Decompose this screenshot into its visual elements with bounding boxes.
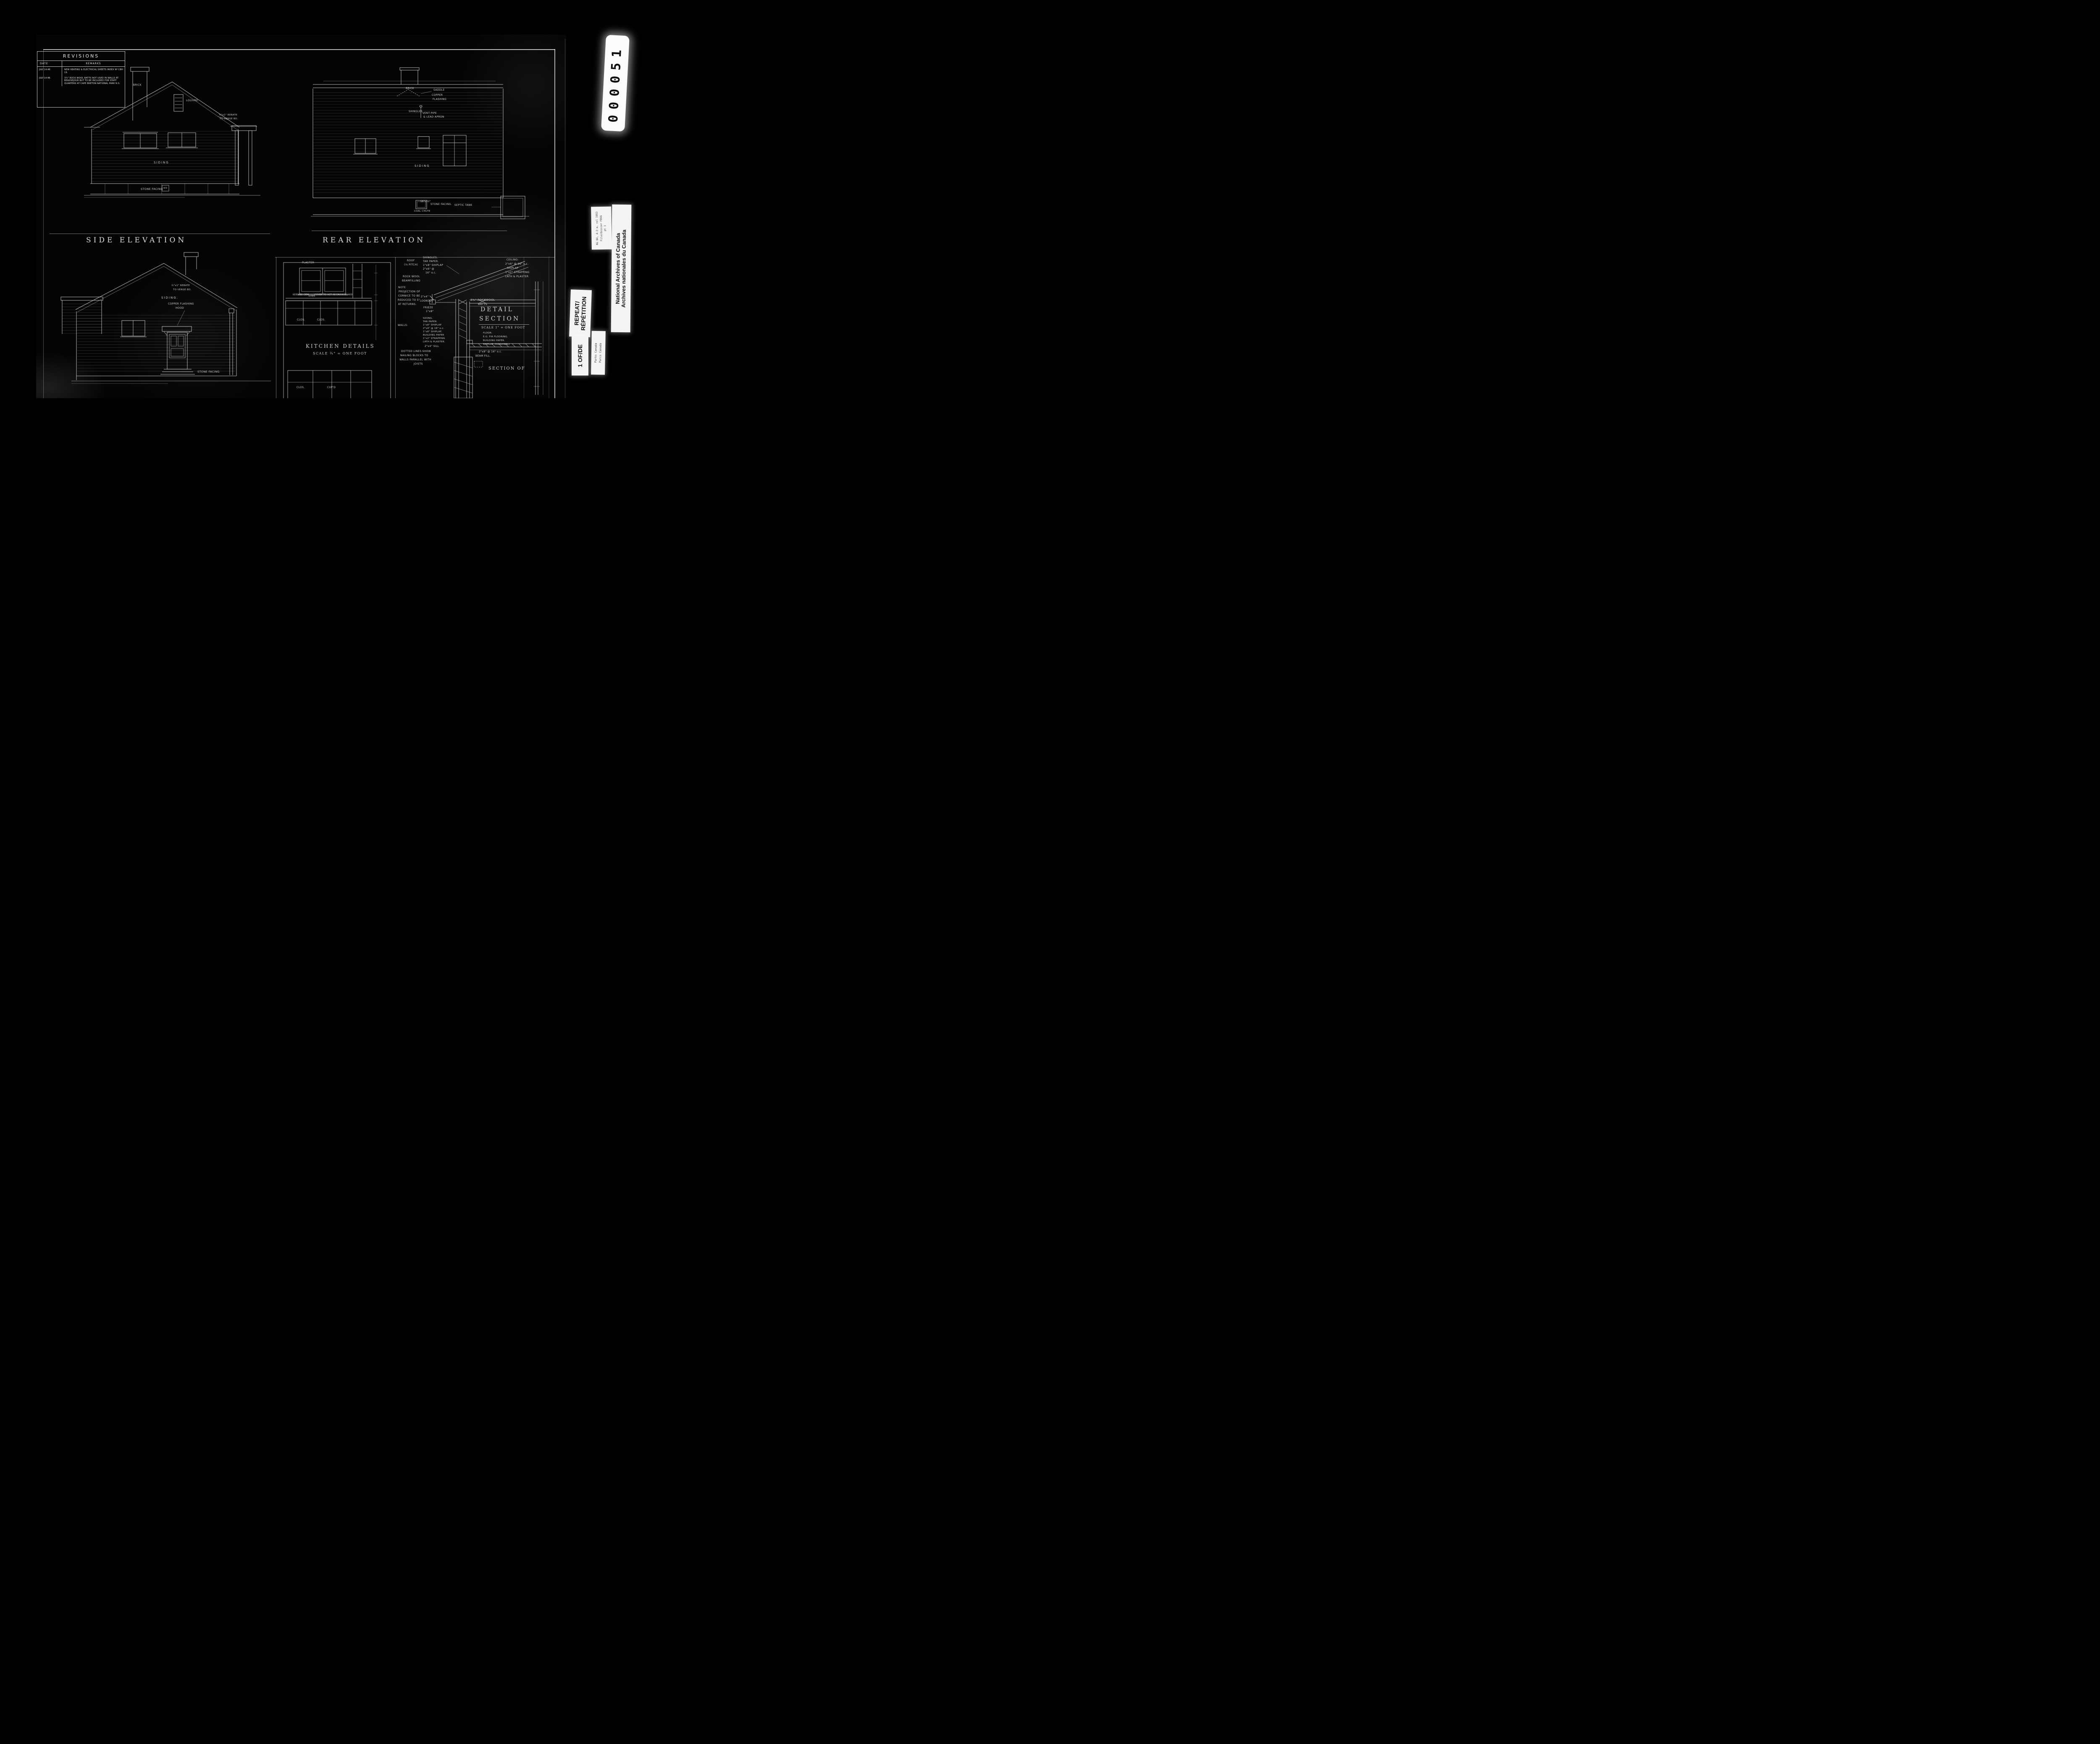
- detail-wall-layers: LATH & PLASTER.: [423, 341, 445, 344]
- repeat-line: RÉPÉTITION: [580, 297, 588, 331]
- side-rebate-label: TO VERGE BD.: [220, 118, 238, 121]
- detail-joists-label: 2"x8" @ 16" o.c.: [479, 351, 502, 353]
- detail-roof-layers: SHINGLES.: [423, 257, 438, 259]
- detail-sill-label: 2"x4" SILL: [425, 345, 439, 348]
- front-copper-hood-label: HOOD: [176, 307, 184, 310]
- kitchen-closet-label: CLOS.: [297, 319, 305, 321]
- front-siding-label: SIDING.: [161, 297, 178, 299]
- frame-number-text: 1 OF/DE: [577, 344, 583, 367]
- side-chimney: [133, 71, 147, 121]
- repeat-label: REPEAT/ RÉPÉTITION: [569, 289, 592, 337]
- parks-canada-line: Parks Canada: [593, 343, 598, 362]
- detail-wall-layers: TAR PAPER.: [423, 321, 437, 323]
- side-porch-column: [249, 131, 252, 185]
- rear-saddle-label: SADDLE: [433, 89, 445, 92]
- side-rebate-label: ½"x1" REBATE: [219, 114, 237, 117]
- rear-saddle: [397, 89, 420, 96]
- detail-walls-label: WALLS:: [398, 324, 408, 327]
- detail-nailing-block: [474, 361, 483, 367]
- kitchen-details-drawing: [273, 256, 399, 398]
- kitchen-keenes-label: KEENES CEM.: [293, 294, 310, 297]
- detail-floor-note: BUILDING PAPER.: [483, 340, 505, 342]
- detail-roof-layers: 1"x8" SHIPLAP: [423, 264, 443, 267]
- detail-floor-note: E.G. FIR FLOORING.: [483, 336, 508, 339]
- detail-beam-fill-label: BEAM FILL.: [475, 355, 491, 357]
- kitchen-drain-board-label: COVER TO ACT AS DRAIN BOARD: [315, 294, 353, 296]
- kitchen-details-title: KITCHEN DETAILS: [306, 344, 375, 349]
- sheet-edge-right: [565, 39, 565, 398]
- national-archives-line: Archives nationales du Canada: [621, 229, 627, 307]
- rear-coal-chute-label: COAL CHUTE: [414, 210, 430, 213]
- rear-chimney: [401, 70, 418, 84]
- detail-title-underline: [479, 324, 529, 325]
- detail-scale-label: SCALE 1" = ONE FOOT: [481, 326, 525, 329]
- side-brick-label: BRICK: [133, 84, 142, 87]
- detail-dotted-note: DOTTED LINES SHOW: [401, 350, 431, 353]
- front-chimney: [186, 257, 197, 275]
- side-siding-label: SIDING: [154, 161, 169, 164]
- side-louvre-label: LOUVRE.: [186, 99, 199, 102]
- side-chimney-cap: [131, 67, 149, 71]
- front-wing: [62, 300, 102, 334]
- front-stone-facing-label: STONE FACING: [197, 370, 220, 373]
- front-rebate-label: ½"x1" REBATE: [171, 285, 190, 287]
- side-stone-facing-label: STONE FACING: [141, 188, 163, 191]
- microfilm-frame: REVISIONS DATE REMARKS JULY 14.48. NEW H…: [0, 0, 659, 398]
- detail-ceiling-note: LATH & PLASTER: [505, 276, 528, 278]
- rear-vent-pipe-label: VENT PIPE: [423, 112, 437, 115]
- detail-floor-note: FLOOR:: [483, 332, 492, 335]
- kitchen-tall-cabinet: [353, 264, 362, 298]
- kitchen-closet-label: CLOS.: [317, 319, 325, 321]
- sheet-border-top: [43, 49, 555, 50]
- detail-frieze-label: 1"x8": [426, 310, 434, 313]
- detail-ceiling-note: 2"x6" @ 16" o.c.: [505, 263, 528, 265]
- detail-section-of-label: SECTION OF: [488, 367, 525, 371]
- detail-section-drawing: [397, 256, 561, 398]
- septic-tank-label: SEPTIC TANK: [454, 204, 472, 207]
- detail-dotted-note: WALLS PARALLEL WITH: [399, 359, 431, 361]
- detail-wall-layers: 1"x2" STRAPPING: [423, 338, 445, 340]
- rear-copper-flashing-label: FLASHING: [433, 98, 446, 101]
- detail-dotted-note: NAILING BLOCKS TO: [400, 355, 428, 357]
- front-pilaster-cap: [229, 309, 234, 313]
- rear-coal-chute-label: 16"x22": [420, 201, 431, 203]
- frame-counter-digits: 000051: [606, 44, 625, 123]
- kitchen-plaster-label: PLASTER: [302, 262, 314, 264]
- rear-siding-label: SIDING: [415, 165, 430, 168]
- front-door-hood: [162, 326, 192, 331]
- detail-roof-layers: 16" o.c.: [425, 272, 436, 274]
- rear-copper-flashing-label: COPPER: [432, 94, 443, 97]
- front-elevation-drawing: [59, 250, 275, 398]
- kitchen-base-cabinets: [286, 301, 372, 325]
- side-wd-label: W/D: [163, 187, 167, 189]
- rear-chimney-cap: [400, 68, 419, 70]
- rear-elevation-drawing: [311, 65, 531, 233]
- rear-stone-facing-label: STONE FACING.: [430, 203, 452, 206]
- detail-frieze-label: FRIEZE: [423, 307, 433, 309]
- detail-roof-layers: 2"x6" @: [423, 268, 434, 271]
- kitchen-counter: [286, 298, 372, 301]
- side-roof: [90, 82, 239, 127]
- rear-shingles-label: SHINGLES: [409, 110, 423, 113]
- parks-canada-line: Parcs Canada: [598, 343, 603, 363]
- archive-reference-label: RG 84, A-2-a, vol 1053 File/dossier FB56…: [591, 207, 612, 250]
- detail-floor-note: SHIPLAP (DIAGONAL): [483, 344, 510, 346]
- rear-walls: [313, 89, 503, 198]
- detail-wall-layers: SIDING.: [423, 318, 433, 320]
- detail-section-title: DETAIL: [480, 307, 514, 313]
- detail-rockwool-batts-label: 3¾" ROCKWOOL: [470, 299, 495, 302]
- detail-roof-label: (⅓ PITCH): [404, 264, 418, 266]
- detail-note: PROJECTION OF: [399, 291, 420, 293]
- septic-tank-box: [501, 196, 525, 219]
- rear-vent-pipe-label: & LEAD APRON: [423, 116, 444, 118]
- detail-dotted-note: JOISTS: [414, 363, 423, 365]
- national-archives-label: National Archives of Canada Archives nat…: [611, 205, 632, 332]
- side-ground-line: [50, 234, 270, 234]
- detail-lookout-label: LOOKOUT: [420, 300, 433, 302]
- detail-note: CORNICE TO BE: [398, 295, 420, 297]
- rear-foundation: [313, 198, 503, 215]
- side-elevation-drawing: [59, 57, 269, 204]
- detail-beamfill-label: BEAMFILLING: [402, 280, 420, 282]
- detail-wall-layers: 1"x8" SHIPLAP.: [423, 331, 442, 334]
- front-pilaster: [230, 313, 233, 375]
- detail-ceiling-note: 1"x2" STRAPPING: [505, 271, 530, 274]
- detail-rockwool-batts-label: BATTS: [478, 303, 487, 306]
- front-steps: [160, 369, 195, 374]
- detail-wall-layers: 2"x4" @ 16" o.c.: [423, 328, 444, 330]
- rear-elevation-title: REAR ELEVATION: [323, 236, 425, 244]
- detail-note: REDUCED TO 5": [398, 299, 420, 302]
- side-louvre: [174, 95, 183, 111]
- kitchen-cupboard-label: CUP'D: [327, 386, 336, 389]
- frame-number-label: 1 OF/DE: [572, 336, 588, 376]
- detail-wall-layers: BUILDING PAPER: [423, 334, 444, 337]
- detail-ceiling-note: SHIPLAP: [507, 267, 518, 270]
- detail-section-title: SECTION: [479, 316, 520, 322]
- detail-lookout-label: 2"x4": [421, 296, 429, 298]
- detail-right-wall: [535, 281, 538, 395]
- front-rebate-label: TO VERGE BD.: [173, 289, 192, 292]
- detail-beamfill-label: ROCK WOOL: [403, 276, 420, 278]
- detail-note: AT RETURNS.: [398, 303, 417, 306]
- side-elevation-title: SIDE ELEVATION: [86, 236, 186, 244]
- frame-counter: 000051: [601, 35, 630, 132]
- front-walls: [76, 310, 236, 380]
- rear-brick-label: BRICK: [406, 87, 414, 90]
- kitchen-lower-drawing: [288, 370, 372, 398]
- side-walls: [92, 129, 238, 184]
- archive-reference-line: pt 1: [603, 211, 608, 245]
- detail-roof-label: ROOF: [407, 260, 415, 262]
- detail-wall-layers: 1"x8" SHIPLAP: [423, 324, 441, 327]
- front-door: [167, 332, 187, 369]
- detail-roof-layers: TAR PAPER.: [423, 260, 439, 263]
- front-copper-hood-label: COPPER FLASHING: [168, 303, 194, 305]
- detail-note: NOTE: [398, 286, 406, 289]
- front-chimney-cap: [184, 252, 198, 257]
- kitchen-scale-label: SCALE ¾" = ONE FOOT: [313, 352, 367, 355]
- kitchen-closet-label: CLOS.: [297, 386, 305, 389]
- parks-canada-label: Parks Canada Parcs Canada: [591, 331, 606, 375]
- rear-window-small: [418, 137, 429, 148]
- detail-ceiling-note: CEILING:: [507, 259, 519, 261]
